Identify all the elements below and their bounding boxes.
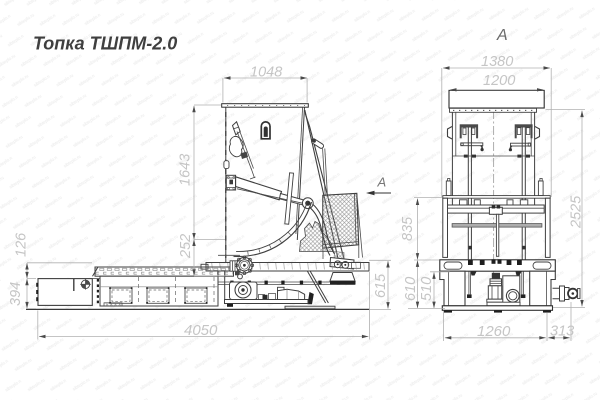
svg-text:1200: 1200 — [483, 73, 515, 89]
svg-text:1643: 1643 — [178, 154, 194, 186]
svg-text:1260: 1260 — [477, 323, 511, 340]
svg-text:313: 313 — [550, 324, 574, 340]
svg-text:1048: 1048 — [250, 65, 282, 81]
svg-text:610: 610 — [403, 277, 419, 301]
svg-text:4050: 4050 — [184, 322, 218, 339]
svg-text:А: А — [377, 175, 387, 190]
svg-text:252: 252 — [178, 234, 194, 259]
svg-text:1380: 1380 — [481, 54, 513, 70]
svg-text:835: 835 — [400, 216, 416, 241]
svg-text:510: 510 — [419, 277, 435, 301]
svg-text:126: 126 — [14, 232, 30, 257]
svg-text:Топка ТШПМ-2.0: Топка ТШПМ-2.0 — [33, 34, 177, 54]
svg-text:А: А — [496, 27, 508, 44]
svg-text:394: 394 — [8, 282, 24, 306]
svg-text:615: 615 — [373, 273, 389, 298]
svg-text:2525: 2525 — [569, 195, 585, 229]
